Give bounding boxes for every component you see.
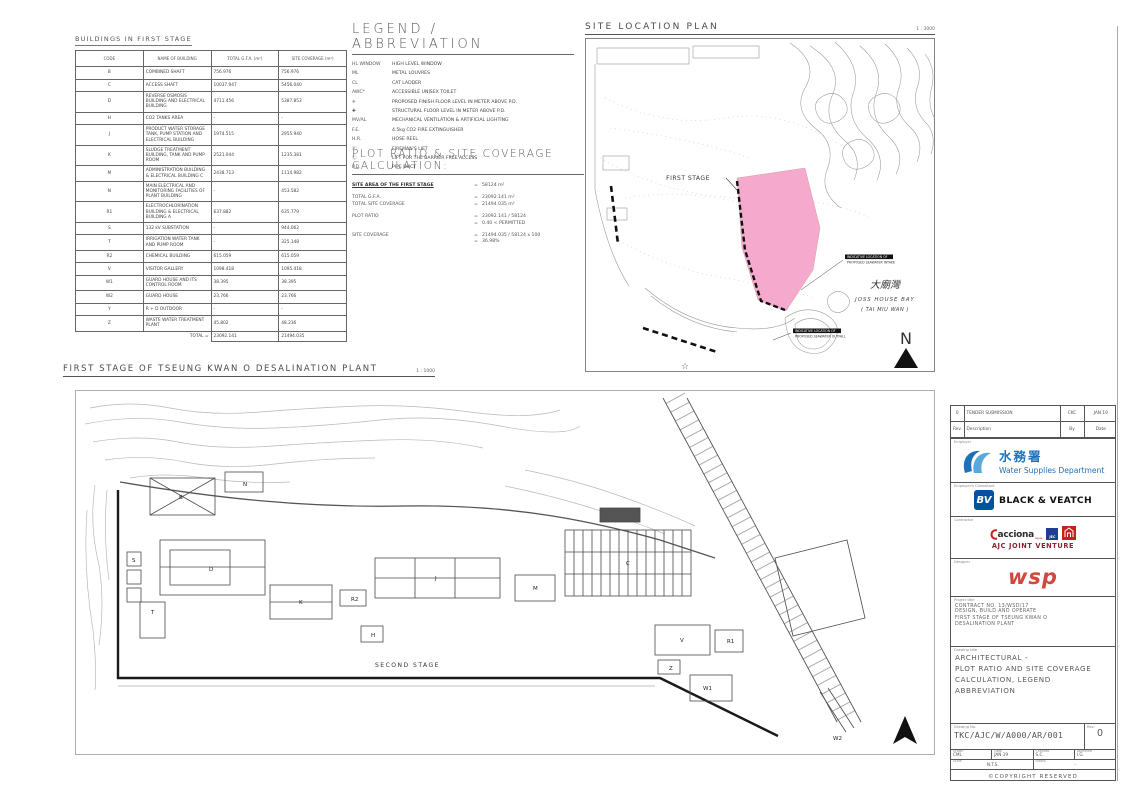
table-cell-name: ELECTROCHLORINATION BUILDING & ELECTRICA…: [143, 202, 211, 223]
table-row: DREVERSE OSMOSIS BUILDING AND ELECTRICAL…: [76, 92, 347, 113]
building-label: M: [533, 586, 538, 592]
plot-ratio-line: =36.98%: [352, 239, 584, 245]
plot-ratio-lines: SITE AREA OF THE FIRST STAGE=58124 m²TOT…: [352, 183, 584, 246]
site-location-plan: FIRST STAGE 大廟灣 JOSS HOUSE BAY ( TAI MIU…: [585, 38, 935, 372]
table-cell-cov: 453.582: [279, 181, 347, 202]
building-label: N: [243, 482, 247, 488]
legend-code: ✳: [352, 98, 392, 107]
table-row: W1GUARD HOUSE AND ITS CONTROL ROOM38.395…: [76, 275, 347, 290]
table-row: W2GUARD HOUSE23.76623.766: [76, 291, 347, 304]
drawing-title-line: ARCHITECTURAL -: [951, 652, 1115, 663]
legend-code: ✚: [352, 107, 392, 116]
seawall-ladder: [663, 398, 861, 722]
site-location-plan-drawing: FIRST STAGE 大廟灣 JOSS HOUSE BAY ( TAI MIU…: [585, 38, 935, 372]
table-cell-gfa: 615.059: [211, 250, 279, 263]
table-cell-gfa: -: [211, 235, 279, 250]
table-row: HCO2 TANKS AREA--: [76, 112, 347, 125]
revision-table: 0 TENDER SUBMISSION CKC JAN 19 Rev. Desc…: [951, 406, 1115, 439]
second-stage-label: SECOND STAGE: [375, 662, 440, 669]
table-cell-code: C: [76, 79, 144, 92]
table-cell-name: CO2 TANKS AREA: [143, 112, 211, 125]
consultant-name: BLACK & VEATCH: [999, 495, 1092, 506]
revision-header-row: Rev. Description By Date: [951, 422, 1115, 438]
table-cell-cov: 635.779: [279, 202, 347, 223]
table-cell-name: SLUDGE TREATMENT BUILDING, TANK AND PUMP…: [143, 145, 211, 166]
revision-header-by: By: [1060, 422, 1084, 438]
wsp-logo: wsp: [951, 564, 1115, 590]
table-cell-cov: 1095.418: [279, 263, 347, 276]
table-row: BCOMBINED SHAFT756.976756.976: [76, 67, 347, 80]
legend-description: HIGH LEVEL WINDOW: [392, 60, 574, 69]
table-cell-code: Y: [76, 303, 144, 316]
table-row: ZWASTE WATER TREATMENT PLANT45.80248.236: [76, 316, 347, 331]
cscec-logo-icon: [1062, 525, 1076, 540]
table-cell-cov: 2955.940: [279, 125, 347, 146]
svg-text:N: N: [900, 329, 912, 348]
revision-entry-row: 0 TENDER SUBMISSION CKC JAN 19: [951, 406, 1115, 422]
legend-item: HL WINDOWHIGH LEVEL WINDOW: [352, 60, 574, 69]
table-cell-gfa: 2521.044: [211, 145, 279, 166]
building-label: T: [150, 610, 155, 616]
drawing-title-section: Drawing title ARCHITECTURAL - PLOT RATIO…: [951, 647, 1115, 724]
table-cell-code: J: [76, 125, 144, 146]
scale-cell: Scale N.T.S.: [951, 760, 1034, 769]
rev-value: 0: [1085, 729, 1115, 739]
legend-item: ✚STRUCTURAL FLOOR LEVEL IN METER ABOVE P…: [352, 107, 574, 116]
plot-label: [352, 221, 470, 227]
table-cell-gfa: 4711.456: [211, 92, 279, 113]
table-row: YR + D OUTDOOR--: [76, 303, 347, 316]
building-labels: NBDSTKR2HJMCVR1ZW1W2: [132, 482, 842, 742]
building-label: K: [299, 600, 303, 606]
drawing-title-line: CALCULATION, LEGEND: [951, 674, 1115, 685]
revision-header-date: Date: [1084, 422, 1115, 438]
table-cell-gfa: 23.766: [211, 291, 279, 304]
table-cell-name: WASTE WATER TREATMENT PLANT: [143, 316, 211, 331]
table-cell-gfa: 2438.713: [211, 166, 279, 181]
copyright-notice: ©COPYRIGHT RESERVED: [951, 770, 1115, 780]
table-cell-name: GUARD HOUSE: [143, 291, 211, 304]
legend-item: MLMETAL LOUVRES: [352, 69, 574, 78]
revision-description: TENDER SUBMISSION: [964, 406, 1060, 422]
table-cell-code: R1: [76, 202, 144, 223]
building-label: R1: [727, 639, 734, 645]
title-block: 0 TENDER SUBMISSION CKC JAN 19 Rev. Desc…: [950, 405, 1116, 781]
first-stage-area: [737, 168, 820, 311]
table-cell-name: PRODUCT WATER STORAGE TANK, PUMP STATION…: [143, 125, 211, 146]
legend-description: HOSE REEL: [392, 135, 574, 144]
plot-value: 0.40 < PERMITTED: [482, 221, 584, 227]
table-cell-cov: 38.395: [279, 275, 347, 290]
legend-title: LEGEND / ABBREVIATION: [352, 22, 574, 55]
table-cell-gfa: 45.802: [211, 316, 279, 331]
table-cell-cov: 5387.853: [279, 92, 347, 113]
table-row: MADMINISTRATION BUILDING & ELECTRICAL BU…: [76, 166, 347, 181]
legend-code: ML: [352, 69, 392, 78]
total-coverage: 21494.035: [279, 331, 347, 341]
bay-name-en2: ( TAI MIU WAN ): [861, 307, 909, 313]
table-cell-gfa: 637.882: [211, 202, 279, 223]
revision-by: CKC: [1060, 406, 1084, 422]
table-cell-code: B: [76, 67, 144, 80]
checked-cell: Checked S.C.: [1034, 750, 1075, 759]
revision-header-description: Description: [964, 422, 1060, 438]
table-cell-code: H: [76, 112, 144, 125]
table-total-row: TOTAL =23092.14121494.035: [76, 331, 347, 341]
main-plan-title: FIRST STAGE OF TSEUNG KWAN O DESALINATIO…: [63, 364, 378, 374]
main-plan-scale: 1 : 1000: [416, 369, 435, 374]
acciona-name: acciona: [998, 530, 1034, 540]
legend-code: MV/AL: [352, 116, 392, 125]
legend-code: AWC*: [352, 88, 392, 97]
table-cell-code: M: [76, 166, 144, 181]
table-cell-code: W1: [76, 275, 144, 290]
site-boundary: [118, 490, 778, 736]
table-cell-gfa: 1974.515: [211, 125, 279, 146]
plot-ratio-line: TOTAL SITE COVERAGE=21494.035 m²: [352, 202, 584, 208]
site-location-plan-title: SITE LOCATION PLAN: [585, 22, 719, 32]
building-label: D: [209, 567, 213, 573]
building-label: V: [680, 638, 684, 644]
legend-description: PROPOSED FINISH FLOOR LEVEL IN METER ABO…: [392, 98, 574, 107]
table-row: S132 kV SUBSTATION-944.062: [76, 222, 347, 235]
employer-name-cn: 水務署: [999, 446, 1104, 465]
table-cell-gfa: 1098.418: [211, 263, 279, 276]
table-cell-name: IRRIGATION WATER TANK AND PUMP ROOM: [143, 235, 211, 250]
legend-item: MV/ALMECHANICAL VENTILATION & ARTIFICIAL…: [352, 116, 574, 125]
revision-date: JAN 19: [1084, 406, 1115, 422]
project-section: Project title CONTRACT NO. 13/WSD/17 DES…: [951, 597, 1115, 647]
table-cell-cov: 756.976: [279, 67, 347, 80]
bay-name-en: JOSS HOUSE BAY: [854, 297, 915, 303]
table-cell-name: VISITOR GALLERY: [143, 263, 211, 276]
table-row: KSLUDGE TREATMENT BUILDING, TANK AND PUM…: [76, 145, 347, 166]
legend-code: CL: [352, 79, 392, 88]
legend-description: METAL LOUVRES: [392, 69, 574, 78]
building-label: C: [626, 561, 630, 567]
table-cell-gfa: 756.976: [211, 67, 279, 80]
hillside-contours: [85, 404, 695, 690]
buildings: [127, 472, 865, 732]
legend-item: F.E.4.5kg CO2 FIRE EXTINGUISHER: [352, 126, 574, 135]
table-row: CACCESS SHAFT10037.9475456.040: [76, 79, 347, 92]
table-cell-name: COMBINED SHAFT: [143, 67, 211, 80]
drawing-title-line: PLOT RATIO AND SITE COVERAGE: [951, 663, 1115, 674]
building-label: Z: [669, 666, 673, 672]
wsd-logo-icon: [959, 447, 995, 475]
plot-ratio-section: PLOT RATIO & SITE COVERAGE CALCULATION: …: [352, 148, 584, 246]
total-label: TOTAL =: [76, 331, 212, 341]
table-cell-name: 132 kV SUBSTATION: [143, 222, 211, 235]
table-cell-cov: 1114.982: [279, 166, 347, 181]
equals-sign: =: [470, 221, 482, 227]
table-cell-cov: 944.062: [279, 222, 347, 235]
table-cell-cov: -: [279, 303, 347, 316]
plot-label: SITE AREA OF THE FIRST STAGE: [352, 183, 470, 189]
legend-item: H.R.HOSE REEL: [352, 135, 574, 144]
acciona-sub: agua: [1035, 536, 1042, 540]
building-label: R2: [351, 597, 358, 603]
table-row: JPRODUCT WATER STORAGE TANK, PUMP STATIO…: [76, 125, 347, 146]
contractor-name: AJC JOINT VENTURE: [951, 542, 1115, 550]
table-cell-gfa: -: [211, 181, 279, 202]
table-cell-cov: 5456.040: [279, 79, 347, 92]
plot-ratio-title: PLOT RATIO & SITE COVERAGE CALCULATION:: [352, 148, 584, 175]
plot-label: TOTAL SITE COVERAGE: [352, 202, 470, 208]
date-cell: Date JAN 19: [992, 750, 1033, 759]
table-header-row: CODE NAME OF BUILDING TOTAL G.F.A. (m²) …: [76, 51, 347, 67]
svg-text:PROPOSED SEAWATER OUTFALL: PROPOSED SEAWATER OUTFALL: [795, 335, 846, 339]
table-cell-code: R2: [76, 250, 144, 263]
table-cell-gfa: -: [211, 303, 279, 316]
plot-value: 21494.035 m²: [482, 202, 584, 208]
equals-sign: =: [470, 183, 482, 189]
legend-code: H.R.: [352, 135, 392, 144]
site-location-plan-header: SITE LOCATION PLAN 1 : 3000: [585, 22, 935, 35]
table-cell-cov: -: [279, 112, 347, 125]
table-cell-cov: 48.236: [279, 316, 347, 331]
legend-description: STRUCTURAL FLOOR LEVEL IN METER ABOVE P.…: [392, 107, 574, 116]
table-cell-cov: 23.766: [279, 291, 347, 304]
building-label: S: [132, 558, 136, 564]
project-line: DESIGN, BUILD AND OPERATE: [951, 609, 1115, 616]
table-cell-code: N: [76, 181, 144, 202]
building-label: B: [179, 495, 183, 501]
table-cell-gfa: -: [211, 222, 279, 235]
contract-number: CONTRACT NO. 13/WSD/17: [951, 602, 1115, 609]
equals-sign: =: [470, 202, 482, 208]
employer-name-en: Water Supplies Department: [999, 466, 1104, 475]
acciona-mark-icon: [990, 529, 998, 540]
designer-section: Designer wsp: [951, 559, 1115, 597]
contractor-section: Contractor acciona agua JEC AJC JOINT VE…: [951, 517, 1115, 559]
employer-section: Employer 水務署 Water Supplies Department: [951, 439, 1115, 483]
consultant-section: Employer's Consultant BV BLACK & VEATCH: [951, 483, 1115, 517]
main-plan-drawing: NBDSTKR2HJMCVR1ZW1W2 SECOND STAGE: [75, 390, 935, 755]
table-cell-gfa: 38.395: [211, 275, 279, 290]
first-stage-leader: [726, 178, 737, 190]
buildings-table-title: BUILDINGS IN FIRST STAGE: [75, 35, 192, 46]
table-cell-name: MAIN ELECTRICAL AND MONITORING FACILITIE…: [143, 181, 211, 202]
table-cell-cov: 615.059: [279, 250, 347, 263]
plot-ratio-line: =0.40 < PERMITTED: [352, 221, 584, 227]
building-label: J: [434, 576, 437, 582]
table-cell-name: GUARD HOUSE AND ITS CONTROL ROOM: [143, 275, 211, 290]
table-cell-code: W2: [76, 291, 144, 304]
plot-ratio-line: SITE AREA OF THE FIRST STAGE=58124 m²: [352, 183, 584, 189]
plot-value: 58124 m²: [482, 183, 584, 189]
table-cell-code: S: [76, 222, 144, 235]
table-cell-code: T: [76, 235, 144, 250]
note-outfall: INDICATIVE LOCATION OF PROPOSED SEAWATER…: [773, 329, 846, 341]
buildings-table-section: BUILDINGS IN FIRST STAGE CODE NAME OF BU…: [75, 26, 347, 342]
main-plan: NBDSTKR2HJMCVR1ZW1W2 SECOND STAGE: [75, 390, 935, 755]
col-coverage: SITE COVERAGE (m²): [279, 51, 347, 67]
building-label: W1: [703, 686, 712, 692]
plot-value: 36.98%: [482, 239, 584, 245]
approved-cell: Approved I.G.: [1075, 750, 1115, 759]
col-name: NAME OF BUILDING: [143, 51, 211, 67]
table-cell-code: D: [76, 92, 144, 113]
revision-number: 0: [951, 406, 964, 422]
legend-code: F.E.: [352, 126, 392, 135]
legend-item: ✳PROPOSED FINISH FLOOR LEVEL IN METER AB…: [352, 98, 574, 107]
table-cell-cov: 1235.381: [279, 145, 347, 166]
drawing-title-line: ABBREVIATION: [951, 685, 1115, 696]
table-row: R2CHEMICAL BUILDING615.059615.059: [76, 250, 347, 263]
project-line: DESALINATION PLANT: [951, 622, 1115, 629]
table-cell-cov: 325.148: [279, 235, 347, 250]
table-row: TIRRIGATION WATER TANK AND PUMP ROOM-325…: [76, 235, 347, 250]
speckle-texture: [600, 98, 870, 298]
table-row: VVISITOR GALLERY1098.4181095.418: [76, 263, 347, 276]
north-arrow-icon: N: [894, 329, 918, 368]
plot-label: [352, 239, 470, 245]
drawing-number: TKC/AJC/W/A000/AR/001: [951, 729, 1084, 740]
drawn-cell: Drawn CML: [951, 750, 992, 759]
legend-item: CLCAT LADDER: [352, 79, 574, 88]
legend-description: 4.5kg CO2 FIRE EXTINGUISHER: [392, 126, 574, 135]
legend-description: ACCESSIBLE UNISEX TOILET: [392, 88, 574, 97]
legend-item: AWC*ACCESSIBLE UNISEX TOILET: [352, 88, 574, 97]
table-cell-name: R + D OUTDOOR: [143, 303, 211, 316]
star-icon: ☆: [681, 362, 689, 372]
revision-header-rev: Rev.: [951, 422, 964, 438]
meta-section: Drawn CML Date JAN 19 Checked S.C. Appro…: [951, 750, 1115, 770]
acciona-logo: acciona agua: [990, 529, 1043, 540]
table-cell-gfa: 10037.947: [211, 79, 279, 92]
total-gfa: 23092.141: [211, 331, 279, 341]
legend-description: MECHANICAL VENTILATION & ARTIFICIAL LIGH…: [392, 116, 574, 125]
status-cell: Status -: [1034, 760, 1116, 769]
table-cell-name: REVERSE OSMOSIS BUILDING AND ELECTRICAL …: [143, 92, 211, 113]
table-row: NMAIN ELECTRICAL AND MONITORING FACILITI…: [76, 181, 347, 202]
main-plan-header: FIRST STAGE OF TSEUNG KWAN O DESALINATIO…: [63, 364, 435, 377]
building-label: W2: [833, 736, 842, 742]
building-label: H: [371, 633, 375, 639]
black-veatch-logo-icon: BV: [974, 490, 994, 510]
table-cell-name: CHEMICAL BUILDING: [143, 250, 211, 263]
buildings-table: CODE NAME OF BUILDING TOTAL G.F.A. (m²) …: [75, 50, 347, 342]
table-cell-code: Z: [76, 316, 144, 331]
table-cell-name: ADMINISTRATION BUILDING & ELECTRICAL BUI…: [143, 166, 211, 181]
table-cell-code: V: [76, 263, 144, 276]
table-cell-gfa: -: [211, 112, 279, 125]
first-stage-label: FIRST STAGE: [666, 175, 710, 182]
drawing-number-section: Drawing No. TKC/AJC/W/A000/AR/001 Rev. 0: [951, 724, 1115, 750]
table-row: R1ELECTROCHLORINATION BUILDING & ELECTRI…: [76, 202, 347, 223]
equals-sign: =: [470, 239, 482, 245]
legend-code: HL WINDOW: [352, 60, 392, 69]
bay-name-cn: 大廟灣: [870, 279, 902, 291]
table-cell-name: ACCESS SHAFT: [143, 79, 211, 92]
col-gfa: TOTAL G.F.A. (m²): [211, 51, 279, 67]
col-code: CODE: [76, 51, 144, 67]
svg-text:PROPOSED SEAWATER INTAKE: PROPOSED SEAWATER INTAKE: [847, 261, 895, 265]
table-cell-code: K: [76, 145, 144, 166]
jec-logo-icon: JEC: [1046, 528, 1058, 540]
north-arrow-icon: [893, 716, 917, 744]
sheet-border: [1117, 26, 1118, 781]
site-location-plan-scale: 1 : 3000: [916, 27, 935, 32]
legend-description: CAT LADDER: [392, 79, 574, 88]
svg-text:INDICATIVE LOCATION OF: INDICATIVE LOCATION OF: [795, 329, 836, 333]
svg-text:INDICATIVE LOCATION OF: INDICATIVE LOCATION OF: [847, 255, 888, 259]
